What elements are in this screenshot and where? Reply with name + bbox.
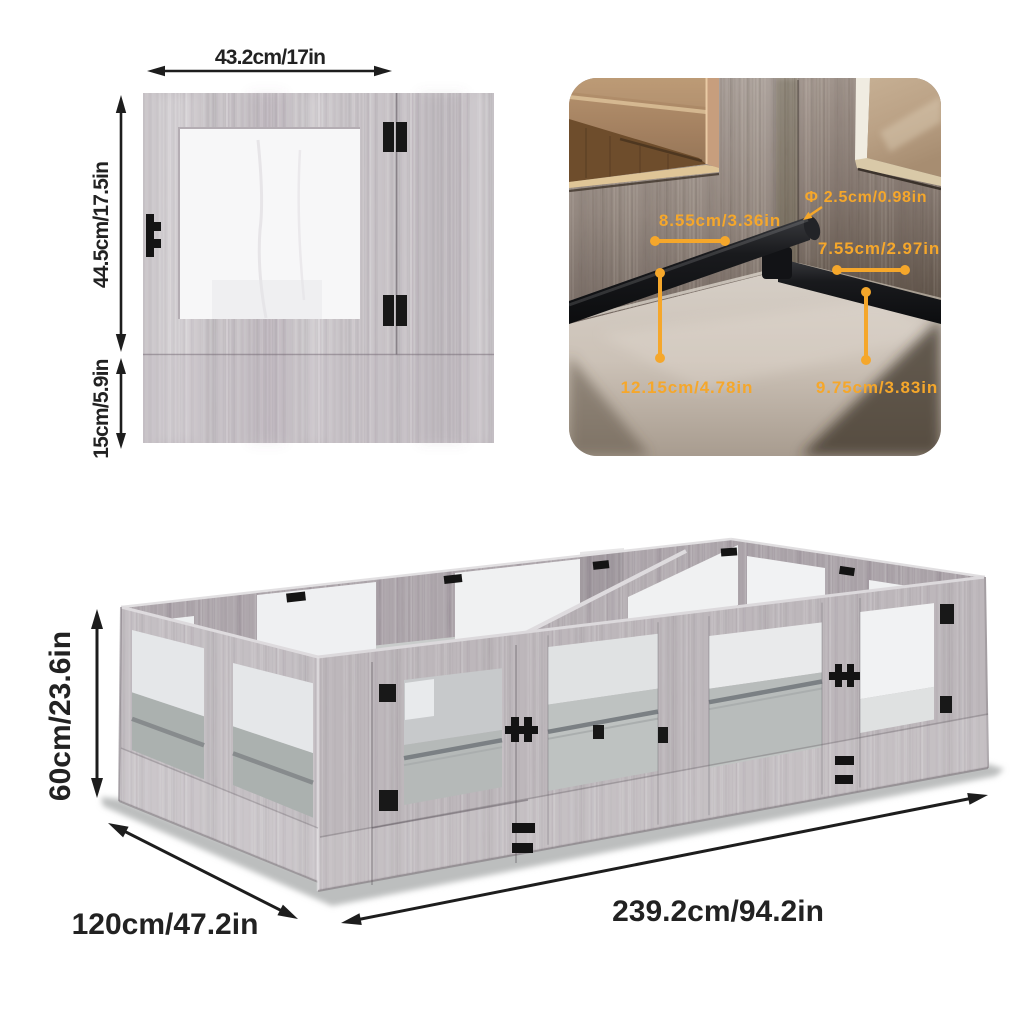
- svg-text:Φ 2.5cm/0.98in: Φ 2.5cm/0.98in: [805, 189, 928, 206]
- svg-text:9.75cm/3.83in: 9.75cm/3.83in: [816, 378, 938, 397]
- svg-text:239.2cm/94.2in: 239.2cm/94.2in: [612, 895, 824, 928]
- svg-text:15cm/5.9in: 15cm/5.9in: [90, 359, 113, 458]
- svg-text:60cm/23.6in: 60cm/23.6in: [44, 631, 77, 801]
- svg-text:43.2cm/17in: 43.2cm/17in: [215, 46, 325, 69]
- svg-text:12.15cm/4.78in: 12.15cm/4.78in: [621, 378, 754, 397]
- svg-text:120cm/47.2in: 120cm/47.2in: [72, 908, 259, 941]
- svg-text:8.55cm/3.36in: 8.55cm/3.36in: [659, 211, 781, 230]
- svg-text:44.5cm/17.5in: 44.5cm/17.5in: [90, 162, 113, 288]
- svg-text:7.55cm/2.97in: 7.55cm/2.97in: [818, 239, 940, 258]
